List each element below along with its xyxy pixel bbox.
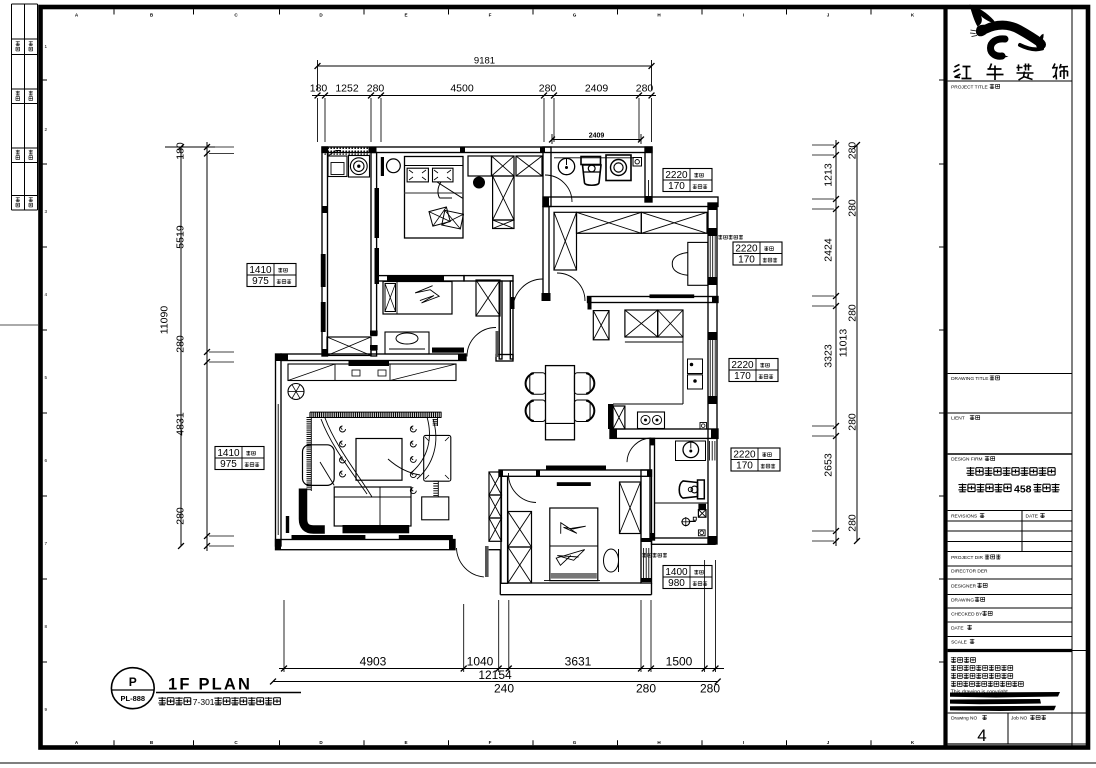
svg-text:2220: 2220 (665, 170, 688, 181)
svg-text:G: G (573, 13, 577, 18)
svg-text:280: 280 (636, 682, 656, 696)
svg-text:PL-888: PL-888 (120, 694, 145, 703)
svg-text:280: 280 (847, 142, 859, 160)
svg-text:4903: 4903 (360, 655, 387, 669)
svg-text:DIRECTOR DER: DIRECTOR DER (951, 568, 988, 574)
svg-text:170: 170 (736, 461, 753, 472)
svg-text:DRAWING TITLE: DRAWING TITLE (951, 376, 988, 382)
svg-text:280: 280 (367, 83, 385, 95)
svg-text:280: 280 (847, 413, 859, 431)
svg-text:1410: 1410 (249, 265, 272, 276)
svg-text:280: 280 (539, 83, 557, 95)
svg-text:280: 280 (700, 682, 720, 696)
svg-text:280: 280 (847, 199, 859, 217)
svg-text:170: 170 (738, 255, 755, 266)
svg-text:2409: 2409 (589, 133, 605, 140)
svg-text:P: P (129, 675, 137, 689)
svg-text:CHECKED BY: CHECKED BY (951, 611, 983, 617)
svg-text:PROJECT DIR: PROJECT DIR (951, 555, 983, 561)
svg-text:280: 280 (636, 83, 654, 95)
svg-text:3323: 3323 (823, 344, 835, 368)
svg-text:J: J (827, 13, 830, 18)
svg-text:280: 280 (847, 514, 859, 532)
svg-text:DESIGNER: DESIGNER (951, 583, 977, 589)
svg-text:4: 4 (977, 726, 986, 745)
svg-text:280: 280 (847, 304, 859, 322)
svg-text:2220: 2220 (731, 360, 754, 371)
svg-text:280: 280 (175, 507, 187, 525)
svg-text:7: 7 (45, 541, 48, 546)
svg-text:1213: 1213 (823, 163, 835, 187)
svg-text:E: E (404, 13, 407, 18)
svg-text:170: 170 (734, 371, 751, 382)
svg-text:9: 9 (45, 707, 48, 712)
svg-text:280: 280 (175, 335, 187, 353)
svg-text:1252: 1252 (335, 83, 359, 95)
svg-text:PROJECT TITLE: PROJECT TITLE (951, 84, 988, 90)
svg-text:1040: 1040 (467, 655, 494, 669)
svg-text:6: 6 (45, 458, 48, 463)
svg-text:F: F (489, 740, 492, 745)
svg-text:4831: 4831 (175, 412, 187, 436)
svg-text:11013: 11013 (838, 329, 850, 358)
svg-text:2653: 2653 (823, 453, 835, 477)
svg-text:J: J (827, 740, 830, 745)
svg-text:4: 4 (45, 292, 48, 297)
svg-text:8: 8 (45, 624, 48, 629)
svg-text:1410: 1410 (217, 448, 240, 459)
svg-text:180: 180 (310, 83, 328, 95)
svg-text:Job NO: Job NO (1011, 716, 1028, 722)
svg-text:9181: 9181 (474, 56, 495, 67)
svg-text:F: F (489, 13, 492, 18)
svg-text:2220: 2220 (735, 244, 758, 255)
svg-text:980: 980 (668, 578, 685, 589)
svg-text:I: I (743, 13, 744, 18)
svg-text:240: 240 (494, 682, 514, 696)
svg-text:I: I (743, 740, 744, 745)
svg-text:1400: 1400 (665, 567, 688, 578)
svg-text:G: G (573, 740, 577, 745)
svg-text:2: 2 (45, 127, 48, 132)
svg-text:2220: 2220 (733, 450, 756, 461)
svg-text:5519: 5519 (175, 225, 187, 249)
svg-text:DATE: DATE (1026, 514, 1038, 520)
svg-text:1: 1 (45, 44, 48, 49)
svg-text:5: 5 (45, 375, 48, 380)
svg-text:2424: 2424 (823, 238, 835, 262)
svg-text:DESIGN FIRM: DESIGN FIRM (951, 457, 982, 463)
svg-text:1500: 1500 (666, 655, 693, 669)
svg-text:12154: 12154 (478, 668, 512, 682)
svg-text:11090: 11090 (159, 306, 171, 335)
svg-text:2409: 2409 (585, 83, 609, 95)
svg-text:1F PLAN: 1F PLAN (168, 676, 252, 694)
svg-text:LIENT: LIENT (951, 416, 965, 422)
svg-text:7-301: 7-301 (193, 697, 215, 707)
svg-text:Drawing NO: Drawing NO (951, 716, 977, 722)
svg-text:458: 458 (1014, 484, 1032, 496)
svg-text:3631: 3631 (565, 655, 592, 669)
svg-text:DATE: DATE (951, 625, 963, 631)
svg-text:3: 3 (45, 209, 48, 214)
svg-text:4500: 4500 (450, 83, 474, 95)
svg-text:REVISIONS: REVISIONS (951, 514, 977, 520)
svg-text:E: E (404, 740, 407, 745)
svg-text:DRAWING: DRAWING (951, 597, 974, 603)
svg-text:975: 975 (252, 276, 269, 287)
svg-text:975: 975 (220, 459, 237, 470)
svg-text:180: 180 (175, 142, 187, 160)
svg-text:170: 170 (668, 181, 685, 192)
svg-text:SCALE: SCALE (951, 639, 967, 645)
